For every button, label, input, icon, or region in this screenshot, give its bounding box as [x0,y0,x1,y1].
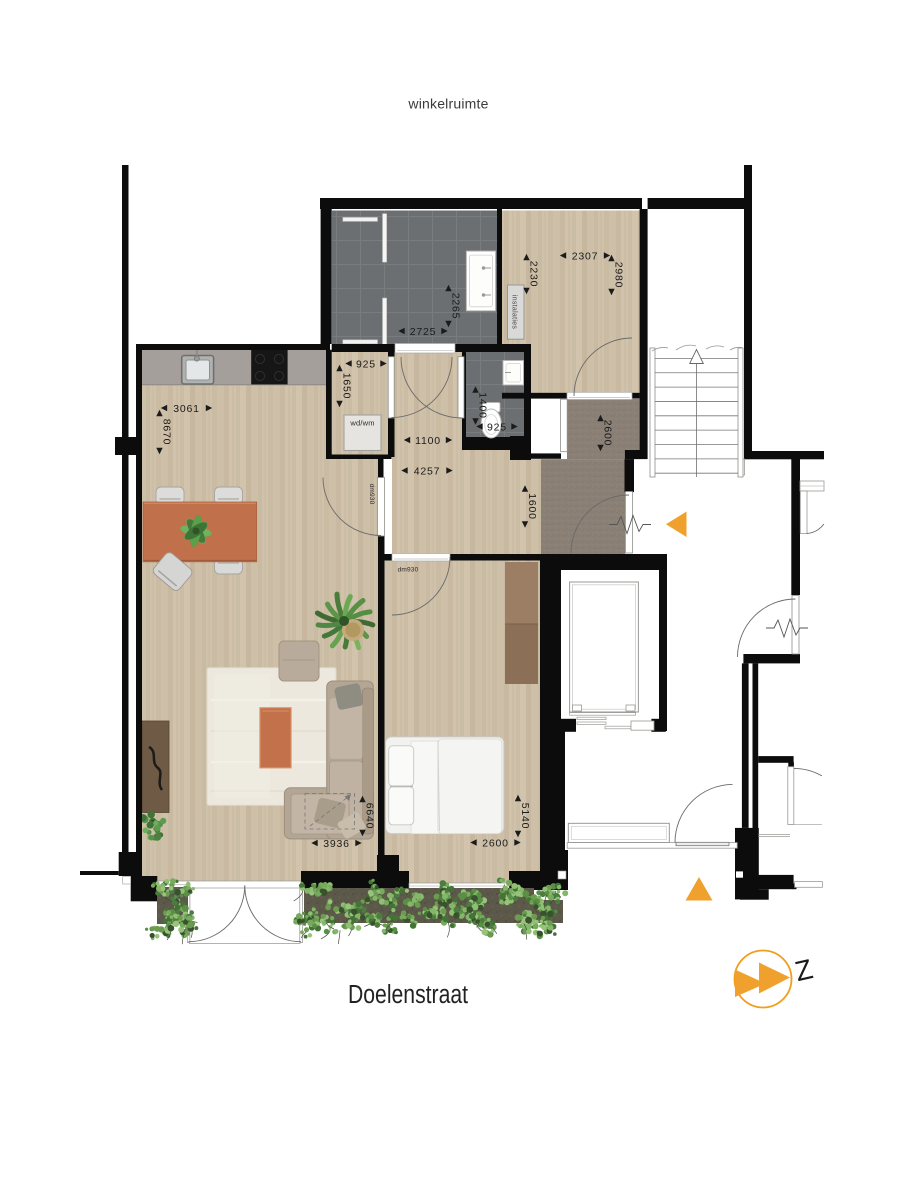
svg-text:2265: 2265 [449,293,461,320]
svg-text:2980: 2980 [612,262,624,289]
svg-text:3061: 3061 [173,403,200,415]
svg-text:1600: 1600 [526,493,538,520]
svg-text:dm930: dm930 [368,484,375,505]
svg-text:Z: Z [792,953,816,987]
svg-text:2307: 2307 [572,250,599,262]
svg-text:instalaties: instalaties [510,295,517,330]
svg-text:6640: 6640 [363,803,375,830]
svg-text:925: 925 [356,358,376,370]
svg-text:1400: 1400 [476,392,488,419]
svg-text:8670: 8670 [160,419,172,446]
svg-text:1650: 1650 [340,373,352,400]
svg-text:winkelruimte: winkelruimte [407,96,488,112]
svg-text:Doelenstraat: Doelenstraat [348,981,468,1009]
svg-text:2600: 2600 [482,837,509,849]
svg-text:3936: 3936 [323,838,350,850]
svg-text:2725: 2725 [410,326,437,338]
svg-text:dm930: dm930 [398,567,419,574]
svg-text:2230: 2230 [527,261,539,288]
svg-text:1100: 1100 [415,435,441,447]
svg-text:4257: 4257 [414,465,441,477]
svg-text:5140: 5140 [519,803,531,830]
svg-text:wd/wm: wd/wm [349,419,374,428]
svg-text:925: 925 [487,421,507,433]
svg-text:2600: 2600 [601,420,613,447]
